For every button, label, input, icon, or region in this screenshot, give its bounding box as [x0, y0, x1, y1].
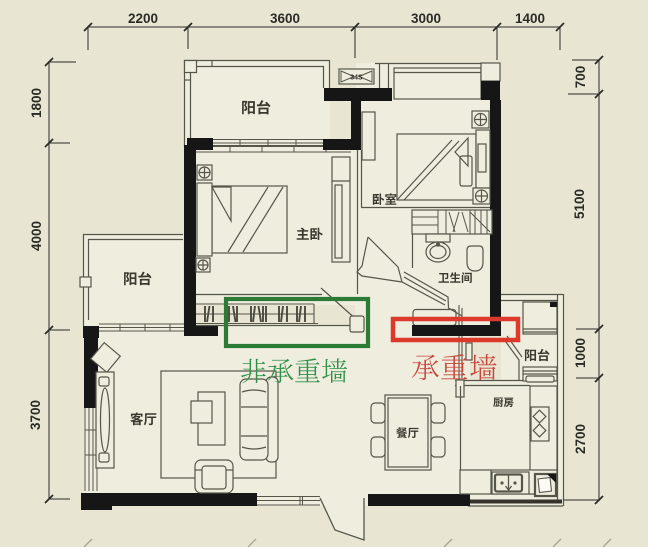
svg-text:3600: 3600: [270, 11, 300, 26]
svg-text:4000: 4000: [29, 221, 44, 251]
svg-text:1800: 1800: [29, 88, 44, 118]
svg-text:2200: 2200: [128, 11, 158, 26]
svg-text:34S: 34S: [350, 75, 363, 82]
svg-text:3000: 3000: [411, 11, 441, 26]
svg-text:1000: 1000: [573, 338, 588, 368]
svg-text:5100: 5100: [572, 189, 587, 219]
svg-text:700: 700: [573, 66, 588, 89]
svg-text:1400: 1400: [515, 11, 545, 26]
svg-text:2700: 2700: [573, 424, 588, 454]
svg-text:3700: 3700: [28, 400, 43, 430]
